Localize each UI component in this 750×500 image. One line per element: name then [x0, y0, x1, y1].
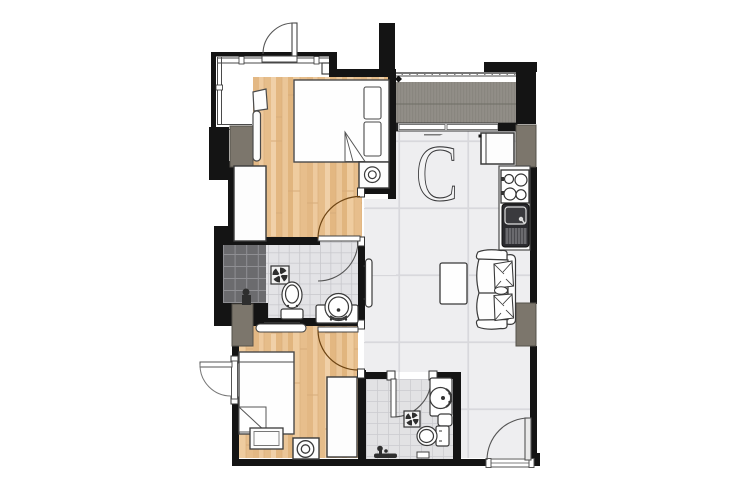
svg-text:C: C — [416, 128, 458, 218]
